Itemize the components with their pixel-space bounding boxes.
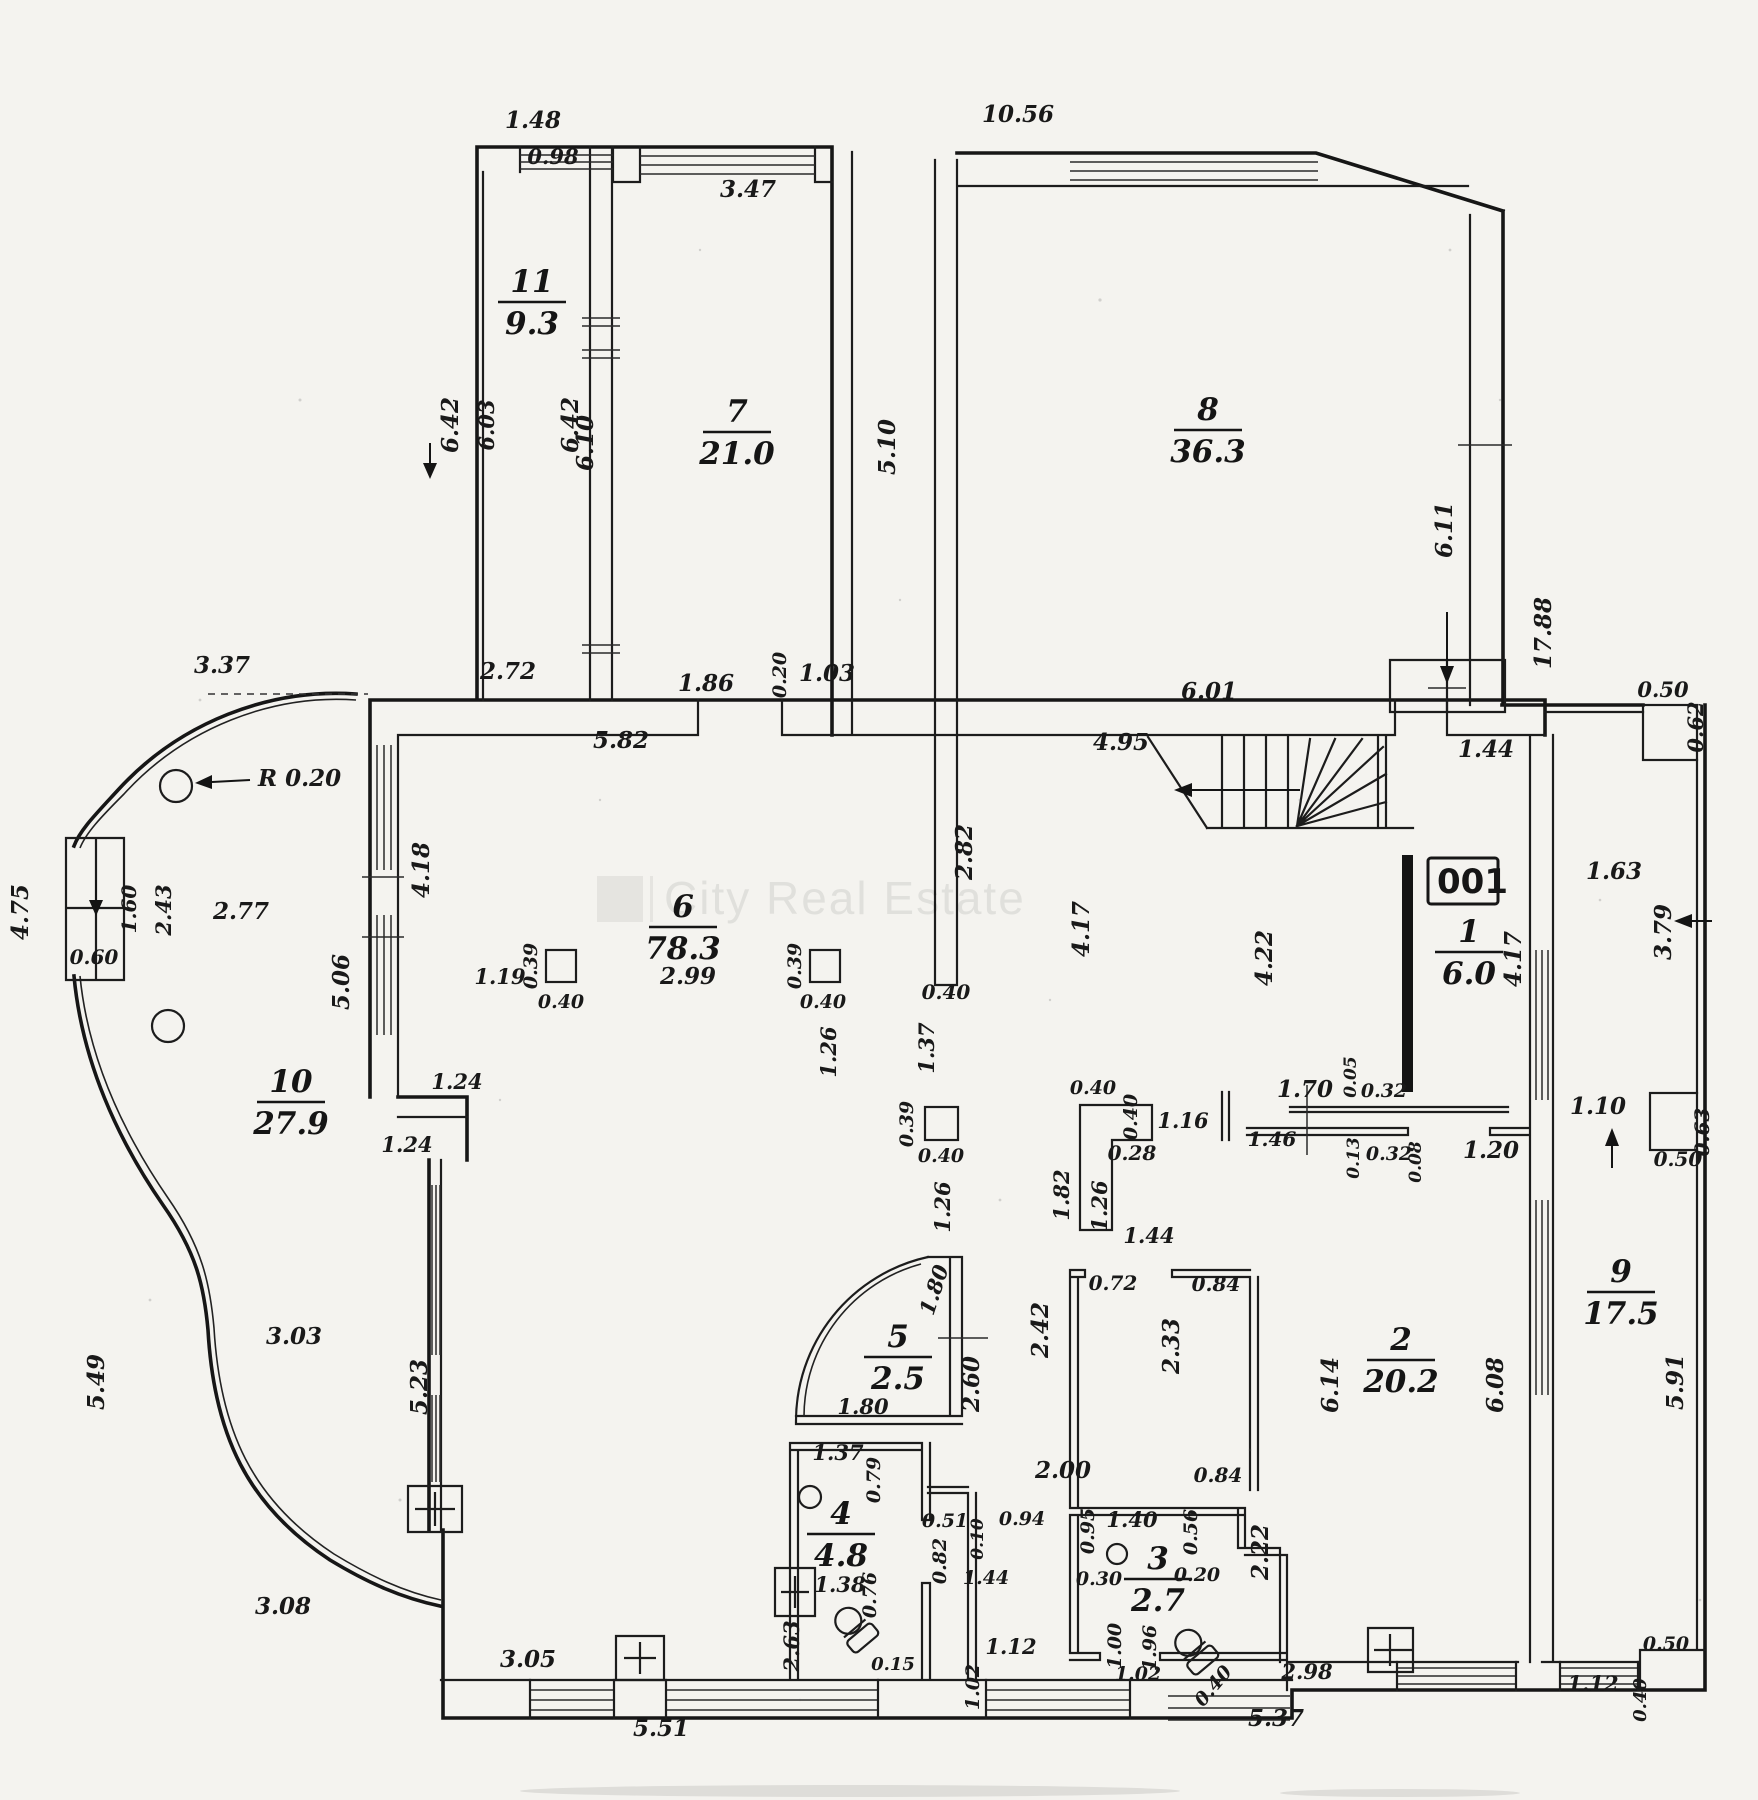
dimension-label: 0.30 bbox=[1076, 1568, 1122, 1590]
dimension-label: 6.14 bbox=[1317, 1357, 1344, 1413]
room-area: 6.0 bbox=[1442, 956, 1496, 992]
entrance-porch bbox=[1390, 612, 1505, 712]
radius-arrow bbox=[195, 775, 212, 789]
room-number: 7 bbox=[726, 394, 748, 430]
room-number: 5 bbox=[887, 1319, 909, 1355]
column bbox=[546, 950, 576, 982]
dimension-label: 1.26 bbox=[816, 1026, 841, 1078]
dimension-label: 0.20 bbox=[1174, 1564, 1220, 1586]
dimension-label: 1.44 bbox=[1458, 736, 1514, 763]
dimension-label: 4.22 bbox=[1251, 930, 1278, 986]
dimension-label: 1.03 bbox=[799, 660, 855, 687]
dimension-label: 2.82 bbox=[951, 824, 978, 881]
dimension-label: 0.39 bbox=[896, 1101, 918, 1147]
dimension-label: 6.01 bbox=[1181, 678, 1237, 705]
dimension-label: 0.39 bbox=[784, 943, 806, 989]
room-number: 10 bbox=[269, 1064, 313, 1100]
dimension-label: 3.79 bbox=[1650, 904, 1677, 960]
dimension-label: 3.47 bbox=[720, 176, 776, 203]
dimension-label: 0.40 bbox=[538, 991, 584, 1013]
room-label: 16.0 bbox=[1435, 914, 1503, 992]
dimension-label: 1.46 bbox=[1248, 1127, 1297, 1151]
radius-label: R 0.20 bbox=[257, 765, 341, 792]
room-area: 9.3 bbox=[505, 306, 559, 342]
room-area: 78.3 bbox=[645, 931, 721, 967]
dimension-label: 0.15 bbox=[871, 1654, 915, 1675]
column bbox=[810, 950, 840, 982]
dimension-label: 1.86 bbox=[678, 670, 734, 697]
dimension-label: 0.32 bbox=[1361, 1080, 1407, 1102]
dimension-label: 10.56 bbox=[982, 101, 1054, 128]
dimension-label: 3.37 bbox=[194, 652, 250, 679]
dimension-label: 5.82 bbox=[593, 727, 649, 754]
column bbox=[925, 1107, 958, 1140]
window-markers bbox=[408, 1486, 1413, 1680]
dimension-label: 1.24 bbox=[381, 1132, 432, 1157]
dimension-label: 0.79 bbox=[863, 1457, 885, 1503]
floor-plan-svg: R 0.20 001 City Real Estate 119.3721.083… bbox=[0, 0, 1758, 1800]
dimension-label: 3.03 bbox=[266, 1323, 322, 1350]
dimension-label: 1.48 bbox=[505, 107, 561, 134]
dimension-label: 1.12 bbox=[1567, 1671, 1618, 1696]
dimension-label: 0.13 bbox=[1344, 1137, 1364, 1179]
round-column bbox=[160, 770, 192, 802]
dimension-label: 2.98 bbox=[1280, 1659, 1333, 1684]
dimension-label: 0.84 bbox=[1192, 1272, 1241, 1296]
dimension-label: 1.12 bbox=[985, 1634, 1036, 1659]
room-number: 1 bbox=[1458, 914, 1480, 950]
dimension-label: 1.37 bbox=[914, 1022, 939, 1074]
dimension-label: 0.05 bbox=[1341, 1056, 1361, 1097]
dimension-label: 1.24 bbox=[431, 1069, 482, 1094]
dimension-label: 0.98 bbox=[527, 144, 579, 169]
dimension-label: 1.44 bbox=[963, 1567, 1009, 1589]
dimension-label: 4.75 bbox=[7, 884, 34, 940]
dimension-label: 1.80 bbox=[837, 1394, 889, 1419]
dimension-label: 0.50 bbox=[1643, 1633, 1689, 1655]
dimension-label: 0.40 bbox=[1190, 1661, 1237, 1711]
dimension-label: 1.80 bbox=[914, 1261, 954, 1318]
dimension-label: 2.42 bbox=[1027, 1302, 1054, 1359]
dimension-label: 6.08 bbox=[1482, 1357, 1509, 1413]
dimension-label: 0.94 bbox=[999, 1508, 1045, 1530]
dimension-label: 1.16 bbox=[1157, 1108, 1209, 1133]
dimension-label: 1.63 bbox=[1586, 858, 1642, 885]
dimension-label: 5.10 bbox=[874, 419, 901, 475]
dimension-label: 0.95 bbox=[1077, 1508, 1099, 1554]
dimension-label: 5.37 bbox=[1248, 1705, 1304, 1732]
dimension-label: 4.17 bbox=[1068, 901, 1095, 957]
dimension-label: 4.17 bbox=[1500, 931, 1527, 987]
room-area: 4.8 bbox=[814, 1538, 868, 1574]
dimension-label: 1.02 bbox=[962, 1664, 984, 1710]
sink-icon bbox=[1107, 1544, 1127, 1564]
room-number: 6 bbox=[672, 889, 694, 925]
room-label: 44.8 bbox=[807, 1496, 875, 1574]
room-label: 119.3 bbox=[498, 264, 566, 342]
room-label: 917.5 bbox=[1583, 1254, 1659, 1332]
dimension-label: 0.40 bbox=[918, 1145, 964, 1167]
dimension-label: 3.08 bbox=[255, 1593, 311, 1620]
dimension-label: 4.18 bbox=[408, 842, 435, 898]
dimension-label: 0.40 bbox=[800, 991, 846, 1013]
room-number: 11 bbox=[510, 264, 553, 300]
down-arrow bbox=[423, 463, 437, 479]
room-area: 36.3 bbox=[1170, 434, 1246, 470]
room-area: 21.0 bbox=[698, 436, 775, 472]
dimension-label: 2.72 bbox=[479, 658, 536, 685]
dimension-label: 0.84 bbox=[1194, 1463, 1243, 1487]
dimension-label: 0.72 bbox=[1089, 1271, 1138, 1295]
toilet-icon bbox=[1168, 1623, 1220, 1677]
dimension-label: 2.22 bbox=[1247, 1524, 1274, 1581]
dimension-label: 6.42 bbox=[437, 397, 464, 453]
dimension-label: 2.43 bbox=[151, 884, 176, 936]
dimension-label: 5.51 bbox=[633, 1715, 689, 1742]
staircase bbox=[1148, 737, 1413, 828]
round-column bbox=[152, 1010, 184, 1042]
dimension-label: 0.28 bbox=[1108, 1141, 1157, 1165]
dimension-label: 2.77 bbox=[212, 898, 269, 925]
dimension-label: 17.88 bbox=[1530, 597, 1557, 669]
dimension-label: 0.60 bbox=[70, 945, 119, 969]
room-label: 220.2 bbox=[1362, 1322, 1439, 1400]
dimension-label: 0.40 bbox=[1120, 1094, 1142, 1140]
dimension-label: 0.76 bbox=[859, 1572, 881, 1618]
room-area: 27.9 bbox=[252, 1106, 329, 1142]
dimension-label: 0.62 bbox=[1683, 701, 1708, 752]
dimension-label: 0.82 bbox=[929, 1538, 951, 1584]
dimension-label: 1.40 bbox=[1106, 1507, 1158, 1532]
dimension-label: 1.44 bbox=[1123, 1223, 1174, 1248]
arrows bbox=[89, 443, 1712, 1168]
dimension-label: 2.33 bbox=[1158, 1318, 1185, 1375]
room-number: 8 bbox=[1196, 392, 1219, 428]
dimension-label: 5.23 bbox=[406, 1359, 433, 1415]
dimension-label: 1.20 bbox=[1463, 1137, 1519, 1164]
dimension-label: 0.40 bbox=[1630, 1678, 1651, 1722]
room-number: 3 bbox=[1147, 1541, 1169, 1577]
room-label: 721.0 bbox=[698, 394, 775, 472]
dimension-label: 5.49 bbox=[83, 1354, 110, 1410]
dimension-label: 1.60 bbox=[117, 885, 141, 934]
sink-icon bbox=[799, 1486, 821, 1508]
dimension-label: 1.70 bbox=[1277, 1076, 1333, 1103]
dimension-label: 0.08 bbox=[1406, 1141, 1426, 1183]
room-number: 4 bbox=[830, 1496, 852, 1532]
dimension-label: 2.99 bbox=[659, 963, 716, 990]
solid-wall bbox=[1402, 855, 1413, 1092]
dimension-label: 1.37 bbox=[812, 1440, 864, 1465]
dimension-label: 2.63 bbox=[779, 1620, 804, 1672]
stair-direction-arrow bbox=[1174, 783, 1192, 797]
dimension-label: 6.10 bbox=[572, 415, 599, 471]
dimension-label: 0.20 bbox=[769, 652, 791, 698]
dimension-label: 1.19 bbox=[474, 964, 526, 989]
room-label: 1027.9 bbox=[252, 1064, 329, 1142]
room-number: 9 bbox=[1610, 1254, 1632, 1290]
entrance-arrow bbox=[1440, 666, 1454, 684]
window-hatches bbox=[362, 155, 1638, 1720]
dimension-label: 0.10 bbox=[968, 1518, 988, 1560]
dimension-label: 2.00 bbox=[1034, 1457, 1091, 1484]
dimension-label: 0.56 bbox=[1180, 1509, 1202, 1555]
room-area: 2.7 bbox=[1130, 1583, 1185, 1619]
dimension-label: 1.82 bbox=[1049, 1169, 1074, 1220]
dimension-label: 0.40 bbox=[922, 980, 971, 1004]
room-area: 17.5 bbox=[1583, 1296, 1659, 1332]
room-label: 836.3 bbox=[1170, 392, 1246, 470]
room-area: 2.5 bbox=[870, 1361, 925, 1397]
floorplan-page: { "watermark": { "text": "City Real Esta… bbox=[0, 0, 1758, 1800]
dimension-label: 6.03 bbox=[474, 399, 499, 450]
room-number: 2 bbox=[1389, 1322, 1412, 1358]
dimension-label: 0.51 bbox=[922, 1510, 968, 1532]
dimension-label: 0.50 bbox=[1637, 677, 1689, 702]
dimension-label: 1.10 bbox=[1570, 1093, 1626, 1120]
dimension-label: 0.40 bbox=[1070, 1077, 1116, 1099]
dimension-label: 1.26 bbox=[1087, 1180, 1112, 1232]
dimension-label: 6.11 bbox=[1431, 502, 1458, 558]
dimension-label: 0.39 bbox=[520, 943, 542, 989]
dimension-label: 5.06 bbox=[328, 954, 355, 1010]
unit-badge-number: 001 bbox=[1437, 862, 1508, 902]
dimension-label: 1.26 bbox=[930, 1181, 955, 1233]
dimension-label: 5.91 bbox=[1662, 1354, 1689, 1410]
room-area: 20.2 bbox=[1362, 1364, 1439, 1400]
dimension-label: 4.95 bbox=[1093, 729, 1149, 756]
dimension-label: 2.60 bbox=[958, 1356, 985, 1413]
room-label: 52.5 bbox=[864, 1319, 932, 1397]
dimension-label: 3.05 bbox=[500, 1646, 556, 1673]
dimension-label: 1.02 bbox=[1115, 1663, 1161, 1685]
dimension-label: 0.50 bbox=[1654, 1147, 1703, 1171]
up-arrow bbox=[1605, 1128, 1619, 1146]
unit-badge: 001 bbox=[1428, 858, 1508, 904]
